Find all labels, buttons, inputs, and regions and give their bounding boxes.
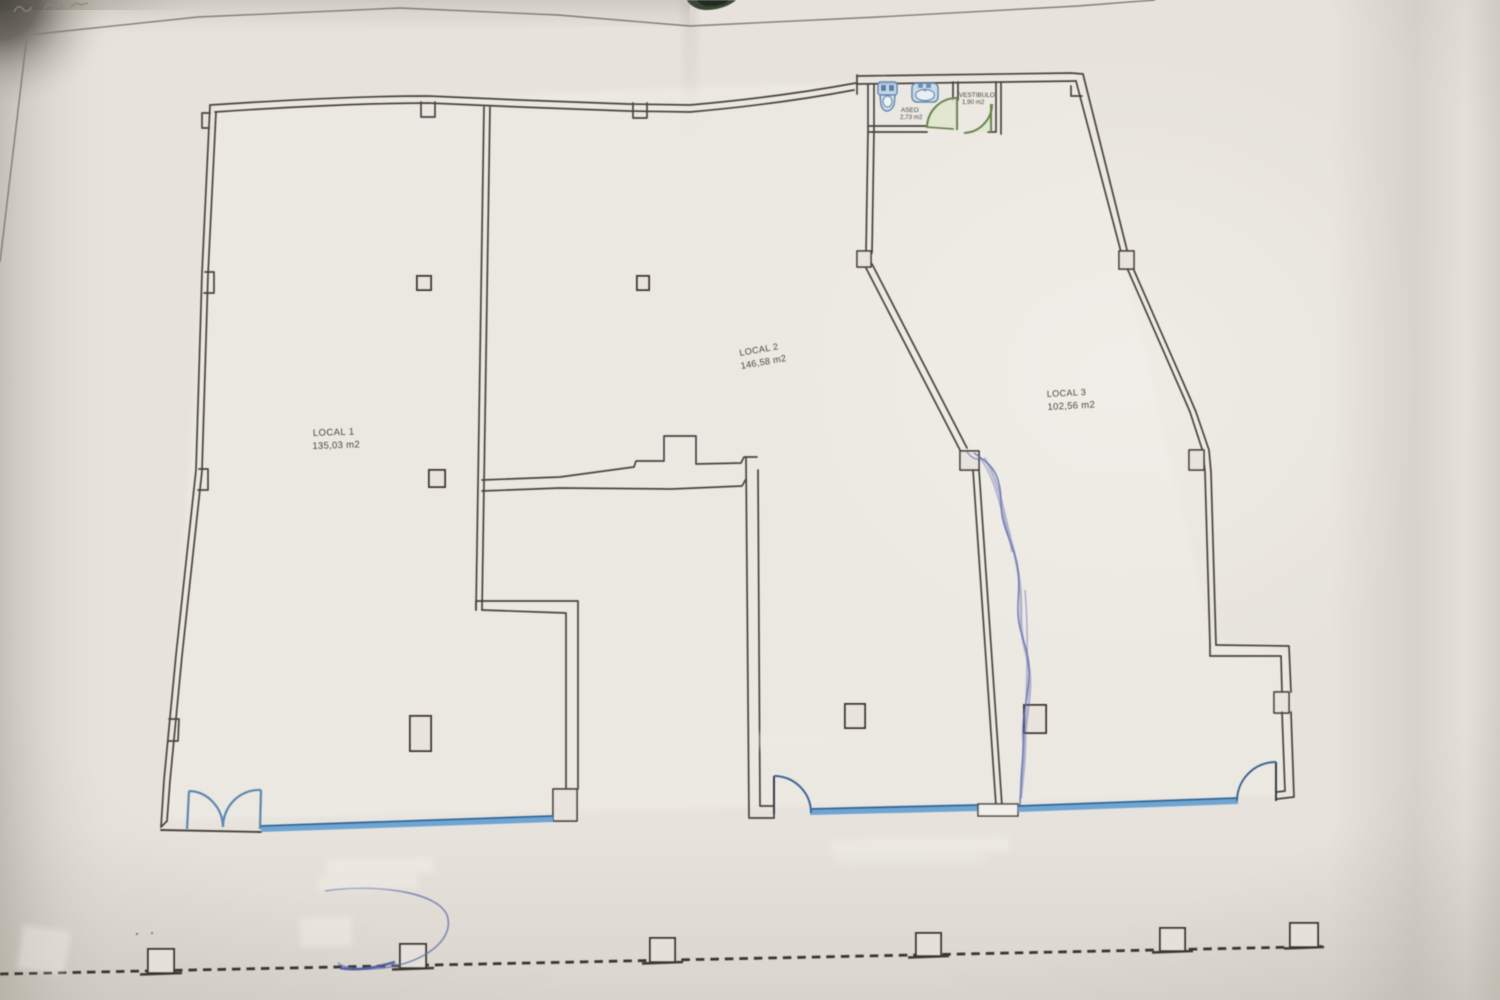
- svg-text:LOCAL 3: LOCAL 3: [1047, 387, 1087, 399]
- svg-text:135,03 m2: 135,03 m2: [312, 439, 360, 452]
- svg-text:VESTIBULO: VESTIBULO: [959, 92, 995, 99]
- svg-text:ASEO: ASEO: [901, 107, 919, 114]
- svg-text:LOCAL 1: LOCAL 1: [313, 427, 355, 439]
- svg-text:2,73 m2: 2,73 m2: [900, 114, 923, 121]
- svg-text:1,90 m2: 1,90 m2: [962, 99, 985, 106]
